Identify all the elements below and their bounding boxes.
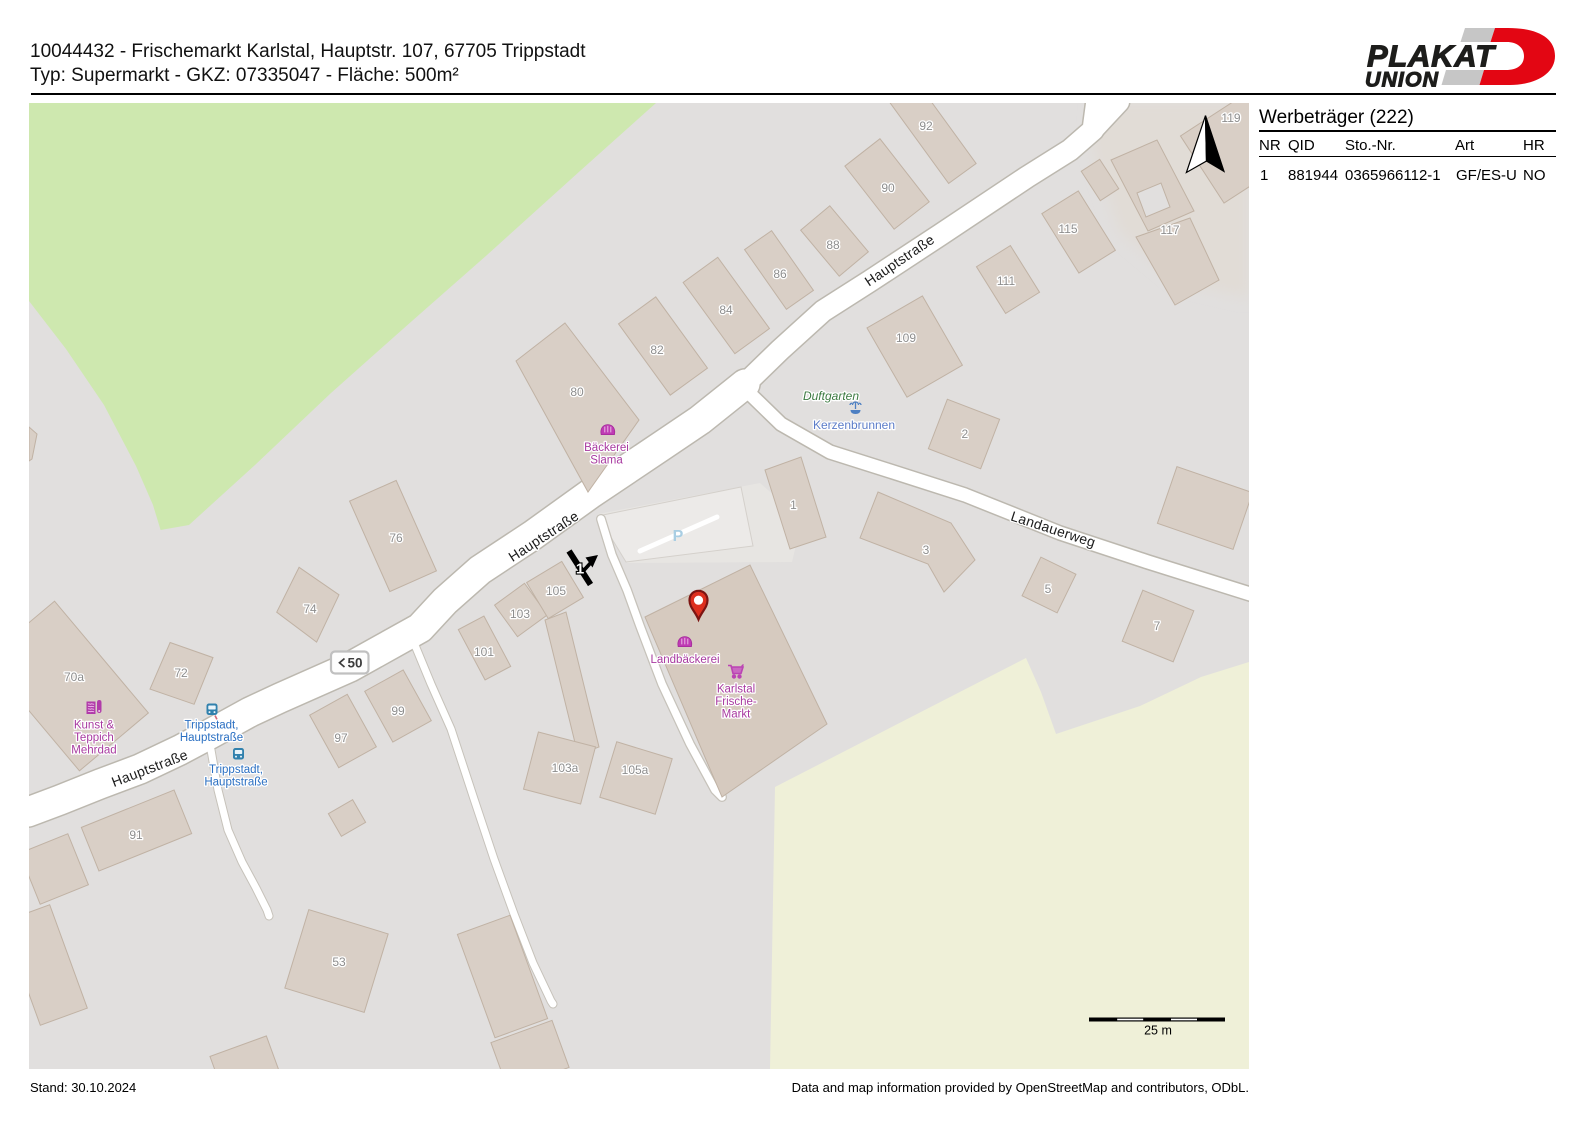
svg-text:82: 82 (650, 343, 664, 357)
svg-text:3: 3 (923, 543, 930, 557)
svg-text:Mehrdad: Mehrdad (71, 745, 116, 757)
svg-text:84: 84 (719, 303, 733, 317)
svg-text:103a: 103a (552, 761, 579, 775)
svg-text:97: 97 (334, 731, 348, 745)
svg-text:86: 86 (773, 267, 787, 281)
svg-text:Slama: Slama (590, 455, 623, 467)
svg-text:91: 91 (129, 828, 143, 842)
svg-text:105a: 105a (622, 763, 649, 777)
svg-text:7: 7 (1154, 619, 1161, 633)
svg-text:80: 80 (570, 385, 584, 399)
svg-text:Hauptstraße: Hauptstraße (204, 777, 267, 789)
svg-text:115: 115 (1058, 222, 1077, 236)
svg-text:90: 90 (881, 181, 895, 195)
svg-text:111: 111 (997, 274, 1016, 288)
svg-text:Bäckerei: Bäckerei (584, 442, 629, 454)
svg-text:Duftgarten: Duftgarten (803, 389, 859, 403)
svg-text:117: 117 (1160, 223, 1179, 237)
svg-text:Markt: Markt (722, 709, 752, 721)
svg-text:Hauptstraße: Hauptstraße (180, 732, 243, 744)
svg-text:72: 72 (174, 666, 188, 680)
svg-text:53: 53 (332, 955, 346, 969)
svg-text:1: 1 (576, 561, 584, 578)
svg-text:Frische-: Frische- (715, 696, 757, 708)
svg-text:103: 103 (510, 607, 530, 621)
svg-text:25 m: 25 m (1144, 1024, 1172, 1038)
svg-text:74: 74 (303, 602, 317, 616)
svg-text:5: 5 (1045, 582, 1052, 596)
svg-text:119: 119 (1221, 111, 1240, 125)
svg-text:101: 101 (474, 645, 494, 659)
svg-text:Teppich: Teppich (74, 732, 114, 744)
svg-text:Kerzenbrunnen: Kerzenbrunnen (813, 418, 895, 432)
svg-text:Trippstadt,: Trippstadt, (185, 720, 239, 732)
svg-text:1: 1 (790, 498, 797, 512)
svg-text:P: P (673, 528, 684, 545)
svg-text:Karlstal: Karlstal (717, 684, 755, 696)
svg-text:99: 99 (391, 704, 405, 718)
svg-text:109: 109 (896, 331, 916, 345)
svg-text:76: 76 (389, 531, 403, 545)
svg-text:88: 88 (826, 238, 840, 252)
svg-text:70a: 70a (64, 670, 84, 684)
svg-text:Trippstadt,: Trippstadt, (209, 764, 263, 776)
svg-text:2: 2 (961, 427, 968, 441)
svg-text:UNION: UNION (1365, 68, 1438, 91)
svg-text:92: 92 (919, 119, 933, 133)
svg-text:50: 50 (347, 656, 362, 671)
svg-text:Kunst &: Kunst & (74, 720, 115, 732)
svg-text:105: 105 (546, 584, 566, 598)
svg-text:Landbäckerei: Landbäckerei (650, 654, 719, 666)
